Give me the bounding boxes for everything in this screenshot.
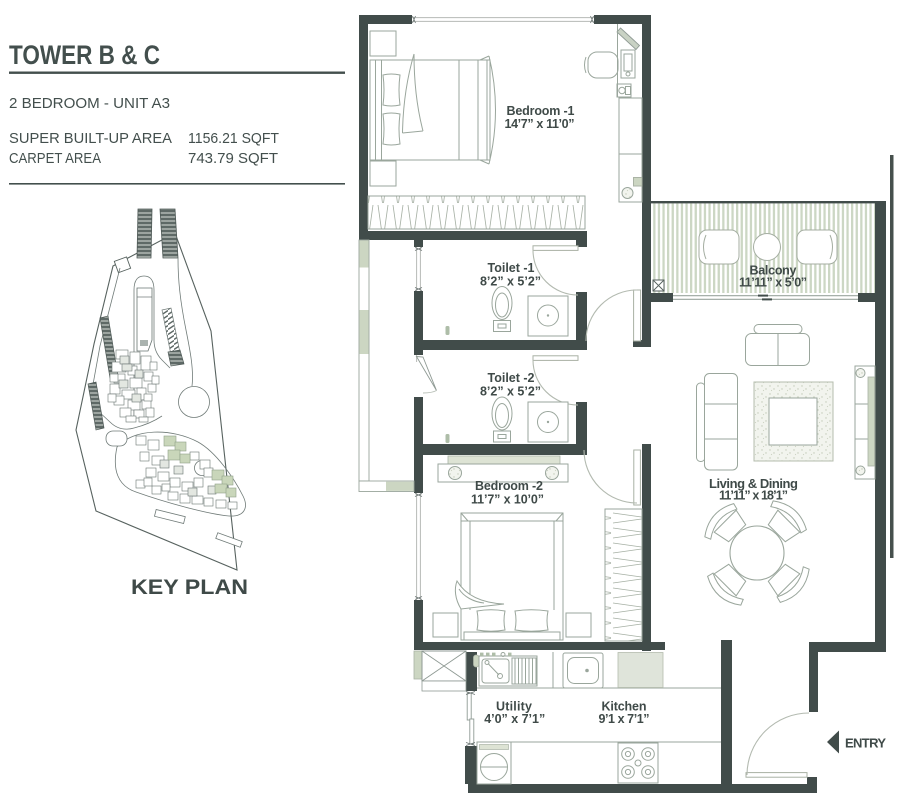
svg-text:Toilet -2: Toilet -2 bbox=[488, 371, 535, 385]
svg-text:2 BEDROOM - UNIT A3: 2 BEDROOM - UNIT A3 bbox=[9, 95, 170, 112]
svg-text:ENTRY: ENTRY bbox=[845, 736, 886, 751]
svg-text:KEY PLAN: KEY PLAN bbox=[131, 576, 248, 599]
svg-text:4’0” x 7’1”: 4’0” x 7’1” bbox=[484, 712, 545, 726]
svg-text:14’7” x 11’0”: 14’7” x 11’0” bbox=[505, 117, 575, 131]
svg-text:11’7” x 10’0”: 11’7” x 10’0” bbox=[471, 493, 544, 507]
svg-text:Toilet -1: Toilet -1 bbox=[488, 261, 535, 275]
svg-text:SUPER BUILT-UP AREA: SUPER BUILT-UP AREA bbox=[9, 130, 172, 147]
svg-text:1156.21 SQFT: 1156.21 SQFT bbox=[188, 130, 279, 147]
svg-text:Bedroom -1: Bedroom -1 bbox=[507, 104, 575, 118]
svg-text:8’2” x 5’2”: 8’2” x 5’2” bbox=[480, 385, 541, 399]
svg-text:Bedroom -2: Bedroom -2 bbox=[475, 479, 543, 493]
svg-text:CARPET AREA: CARPET AREA bbox=[9, 150, 101, 167]
svg-text:8’2” x 5’2”: 8’2” x 5’2” bbox=[480, 275, 541, 289]
svg-text:743.79 SQFT: 743.79 SQFT bbox=[188, 150, 278, 167]
svg-text:11’11” x 5’0”: 11’11” x 5’0” bbox=[739, 276, 807, 290]
svg-text:TOWER B & C: TOWER B & C bbox=[9, 40, 160, 70]
svg-text:9’1 x 7’1”: 9’1 x 7’1” bbox=[599, 712, 650, 726]
svg-text:11’11” x 18’1”: 11’11” x 18’1” bbox=[719, 489, 788, 503]
